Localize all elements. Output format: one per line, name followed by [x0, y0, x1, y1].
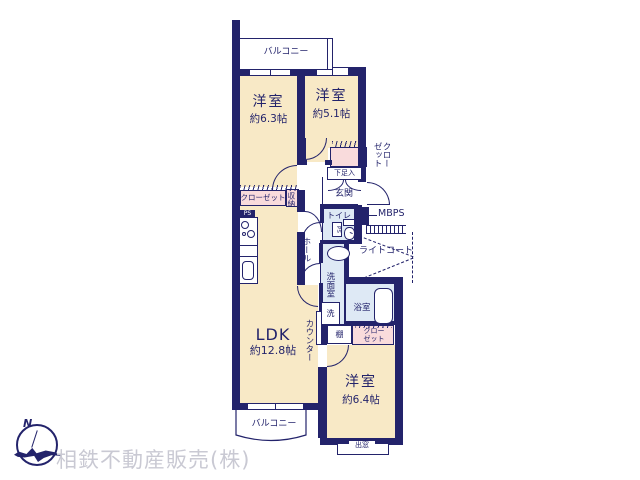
laundry-label: 洗: [327, 309, 335, 318]
closet-a-label: クローゼット: [240, 194, 286, 203]
shelf-box: 棚: [327, 325, 352, 344]
light-court-louver: [366, 225, 406, 234]
bathtub-icon: [374, 288, 393, 324]
bedroom-a-name: 洋室: [240, 94, 297, 110]
washbasin-icon: [327, 246, 350, 261]
ps-toilet-box: PS: [332, 222, 342, 237]
shelf-label: 棚: [336, 330, 344, 339]
hall-label: ホール: [301, 232, 310, 268]
wall-toilet-bottom: [320, 240, 356, 244]
closet-c-label-line2: ゼット: [364, 335, 385, 343]
wall-ldk-bedroom-c-2: [318, 367, 327, 438]
wall-right-lower: [395, 277, 403, 445]
washroom-label: 洗面室: [325, 265, 334, 305]
ps-toilet-label: PS: [334, 226, 340, 233]
stove-burner-1-icon: [241, 221, 249, 229]
wall-toilet-top: [320, 204, 358, 208]
stove-burner-2-icon: [247, 230, 255, 238]
washing-machine: 洗: [321, 302, 340, 325]
light-court-boundary-3: [412, 232, 413, 283]
compass-icon: N: [14, 422, 62, 470]
balcony-bottom-label: バルコニー: [245, 419, 303, 429]
floor-plan: バルコニー バルコニー 出窓 下足入 玄関 PS PS 洗 M: [0, 0, 640, 480]
kitchen-sink-icon: [242, 261, 254, 280]
wall-divider-ab: [297, 67, 305, 165]
ldk-size: 約12.8帖: [238, 345, 308, 358]
stove-burner-3-icon: [242, 232, 246, 236]
wall-bedroom-b-bottom-2: [325, 160, 332, 165]
mbps-label: MBPS: [378, 209, 404, 220]
shoe-cabinet: 下足入: [327, 167, 362, 180]
entrance-label: 玄関: [330, 189, 358, 199]
company-name: 相鉄不動産販売(株): [56, 444, 250, 474]
bedroom-c-size: 約6.4帖: [327, 394, 395, 406]
bedroom-c-name: 洋室: [327, 374, 395, 390]
kitchen-divider-2: [240, 256, 257, 257]
closet-b-folding-door: [332, 141, 365, 147]
ldk-name: LDK: [240, 326, 306, 344]
mbps-leader-line: [369, 215, 377, 216]
light-court-label: ライトコート: [357, 246, 415, 256]
wall-bedroom-b-bottom-1: [297, 160, 307, 165]
mbps-box: [358, 207, 369, 225]
bedroom-b-size: 約5.1帖: [305, 108, 358, 120]
bedroom-b-name: 洋室: [305, 88, 358, 104]
bay-window-label: 出窓: [349, 441, 375, 449]
kitchen-divider-1: [240, 245, 257, 246]
wall-washroom-left-1: [319, 243, 323, 263]
closet-c-label: クロー ゼット: [354, 327, 394, 343]
closet-b-label: クローゼット: [368, 139, 390, 171]
shoe-cabinet-label: 下足入: [334, 169, 355, 177]
entrance-step-line: [322, 177, 323, 205]
toilet-label: トイレ: [325, 211, 353, 220]
wall-right-upper: [358, 67, 366, 167]
wall-hall-left-1: [297, 190, 305, 212]
wall-toilet-left: [320, 207, 324, 223]
storage-label: 収納: [287, 191, 295, 207]
door-entrance: [367, 182, 390, 205]
compass-north-label: N: [23, 418, 32, 431]
closet-c-label-line1: クロー: [364, 327, 385, 335]
balcony-top-label: バルコニー: [241, 47, 331, 57]
bath-label: 浴室: [349, 304, 375, 314]
door-entrance-leaf: [367, 204, 390, 205]
counter-box: [316, 311, 322, 345]
bedroom-a-size: 約6.3帖: [240, 113, 297, 125]
